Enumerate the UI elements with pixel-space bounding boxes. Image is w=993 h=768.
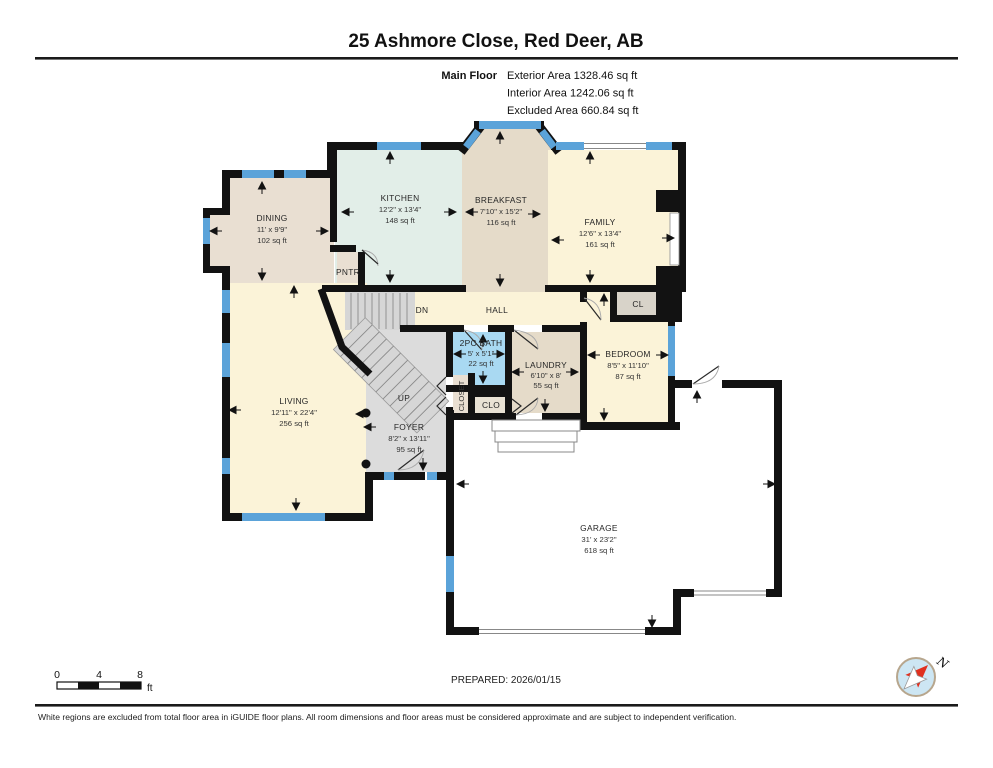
svg-text:8'5" x 11'10": 8'5" x 11'10": [607, 361, 649, 370]
svg-text:22 sq ft: 22 sq ft: [468, 359, 494, 368]
svg-text:5' x 5'1": 5' x 5'1": [468, 349, 495, 358]
scale-unit: ft: [147, 683, 153, 694]
label-dining: DINING: [256, 213, 287, 223]
exterior-area: Exterior Area 1328.46 sq ft: [507, 70, 637, 82]
excluded-area: Excluded Area 660.84 sq ft: [507, 105, 638, 117]
label-clo: CLO: [482, 400, 500, 410]
svg-text:12'6" x 13'4": 12'6" x 13'4": [579, 229, 621, 238]
prepared-date: PREPARED: 2026/01/15: [451, 675, 561, 686]
svg-text:7'10" x 15'2": 7'10" x 15'2": [480, 207, 522, 216]
svg-text:12'2" x 13'4": 12'2" x 13'4": [379, 205, 421, 214]
scale-bar: 0 4 8 ft: [54, 669, 153, 694]
room-fills: [210, 127, 678, 513]
page-title: 25 Ashmore Close, Red Deer, AB: [348, 31, 643, 52]
svg-text:618 sq ft: 618 sq ft: [584, 546, 614, 555]
footer-divider: [35, 704, 958, 707]
garage-door-right: [694, 591, 766, 595]
label-bath: 2PC BATH: [460, 338, 503, 348]
header: 25 Ashmore Close, Red Deer, AB Main Floo…: [35, 31, 958, 117]
floorplan-page: 25 Ashmore Close, Red Deer, AB Main Floo…: [0, 0, 993, 768]
fireplace-block-top: [656, 190, 686, 212]
svg-text:8'2" x 13'11": 8'2" x 13'11": [388, 434, 430, 443]
svg-text:102 sq ft: 102 sq ft: [257, 236, 287, 245]
footer: White regions are excluded from total fl…: [35, 704, 958, 722]
svg-text:161 sq ft: 161 sq ft: [585, 240, 615, 249]
compass: N: [897, 653, 951, 696]
scale-tick-8: 8: [137, 669, 143, 681]
header-divider: [35, 57, 958, 60]
svg-text:87 sq ft: 87 sq ft: [615, 372, 641, 381]
svg-text:256 sq ft: 256 sq ft: [279, 419, 309, 428]
label-laundry: LAUNDRY: [525, 360, 567, 370]
garage-step: [492, 420, 580, 431]
label-foyer: FOYER: [394, 422, 424, 432]
label-hall: HALL: [486, 305, 508, 315]
north-label: N: [933, 653, 951, 671]
svg-text:6'10" x 8': 6'10" x 8': [531, 371, 562, 380]
svg-text:55 sq ft: 55 sq ft: [533, 381, 559, 390]
garage-door-bottom: [479, 630, 645, 634]
svg-text:95 sq ft: 95 sq ft: [396, 445, 422, 454]
room-dining-bay-floor: [210, 215, 232, 266]
svg-text:12'11" x 22'4": 12'11" x 22'4": [271, 408, 317, 417]
label-cl: CL: [632, 299, 643, 309]
label-pantry: PNTR: [336, 267, 360, 277]
label-family: FAMILY: [585, 217, 616, 227]
scale-tick-4: 4: [96, 669, 102, 681]
svg-text:148 sq ft: 148 sq ft: [385, 216, 415, 225]
garage-step: [498, 442, 574, 452]
svg-text:31' x 23'2": 31' x 23'2": [581, 535, 616, 544]
column: [362, 460, 371, 469]
label-breakfast: BREAKFAST: [475, 195, 527, 205]
garage-step: [495, 431, 577, 442]
svg-text:11' x 9'9": 11' x 9'9": [257, 225, 288, 234]
label-kitchen: KITCHEN: [381, 193, 420, 203]
floorplan-canvas: 25 Ashmore Close, Red Deer, AB Main Floo…: [0, 0, 993, 768]
label-garage: GARAGE: [580, 523, 618, 533]
label-closet: CLOSET: [457, 380, 466, 411]
floor-label: Main Floor: [441, 70, 497, 82]
label-stairs-dn: DN: [416, 305, 429, 315]
label-bedroom: BEDROOM: [605, 349, 650, 359]
label-stairs-up: UP: [398, 393, 410, 403]
disclaimer-text: White regions are excluded from total fl…: [38, 712, 736, 722]
svg-text:116 sq ft: 116 sq ft: [487, 218, 517, 227]
label-living: LIVING: [279, 396, 308, 406]
interior-area: Interior Area 1242.06 sq ft: [507, 88, 634, 100]
scale-tick-0: 0: [54, 669, 60, 681]
fireplace-block-bottom: [656, 266, 686, 288]
